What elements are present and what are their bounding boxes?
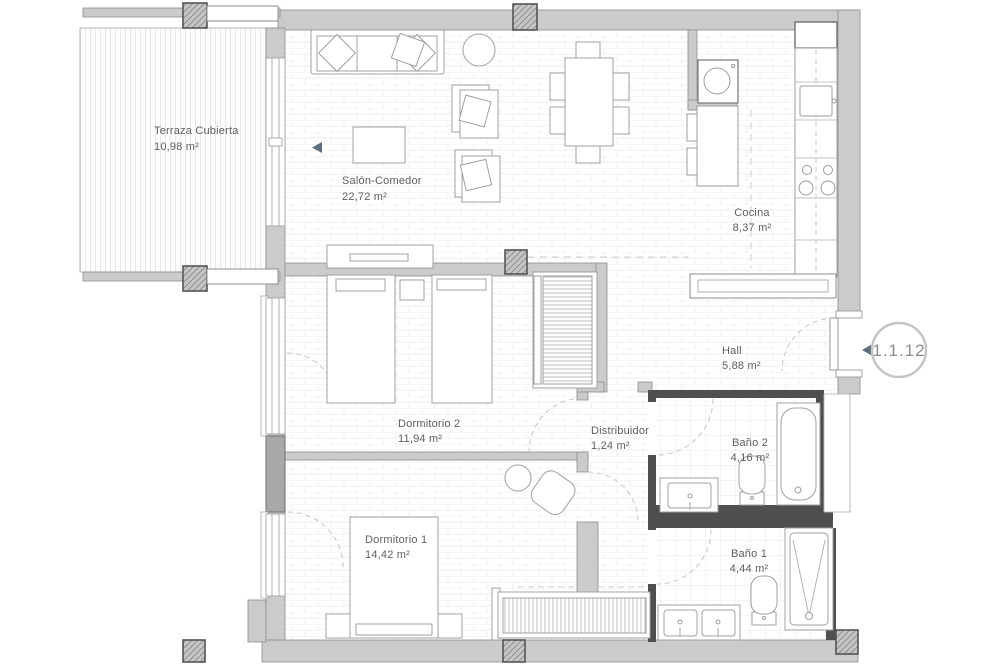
room-name: Distribuidor [591,425,649,437]
dining-chair-left-2 [550,107,566,134]
wall-between-baths [648,515,833,528]
exterior-ledge [824,394,850,512]
armchair-1 [452,85,498,138]
wall-hall-wardrobe [596,263,607,392]
shower-drain [806,613,813,620]
bath1-toilet [751,576,777,625]
bath1-toilet-button [763,617,766,620]
wall-bath2-top [648,390,824,398]
room-area: 4,44 m² [730,563,769,575]
dorm1-window [266,514,285,596]
floorplan-page: Terraza Cubierta 10,98 m² Salón-Comedor … [0,0,1000,666]
armchair-2-pillow [460,159,491,190]
wall-bath2-left-a [648,390,656,402]
room-name: Terraza Cubierta [154,125,239,137]
dining-chair-top [576,42,600,60]
wall-right-upper [838,10,860,315]
washing-machine-drum [704,68,730,94]
room-area: 8,37 m² [733,222,772,234]
bed1-pillow [356,624,432,635]
column-bottom-1 [183,640,205,662]
room-name: Dormitorio 2 [398,418,460,430]
wall-dorm2-dorm1 [285,452,588,460]
dorm1-wardrobe-hanging [503,598,646,633]
room-area: 11,94 m² [398,433,442,445]
wall-kitchen-left [688,30,697,110]
entrance-jamb-top [836,311,862,318]
dorm2-wardrobe-hanging [543,276,592,384]
bath2-toilet-button [751,497,754,500]
shower-tray [790,533,828,625]
column-top-wall [513,4,537,30]
bath2-faucet [688,494,692,498]
side-table-round [463,34,495,66]
wall-bottom-left-jog [248,600,266,642]
unit-label: 1.1.12 [872,341,925,360]
wall-top [278,10,858,30]
unit-marker: 1.1.12 [862,323,926,377]
dining-chair-right-1 [613,73,629,100]
column-bottom-right [836,630,858,654]
dorm2-wardrobe-door [534,276,541,384]
room-name: Hall [722,345,742,357]
column-interior [505,250,527,274]
column-bottom-2 [503,640,525,662]
burner-small-right [824,166,833,175]
bed2-single-2 [432,275,492,403]
sofa [311,30,444,74]
dorm2-wardrobe [533,272,597,388]
dorm1-side-table [505,465,531,491]
tv-console [327,245,433,268]
entrance-jamb-bottom [836,370,862,377]
armchair-2 [455,150,500,202]
room-name: Baño 1 [731,548,767,560]
room-area: 22,72 m² [342,191,387,203]
room-area: 4,16 m² [731,452,770,464]
salon-glazing-handle [269,138,282,146]
dorm1-wardrobe [492,588,650,640]
bath1-vanity [658,605,740,640]
coffee-table [353,127,405,163]
dining-chair-bottom [576,145,600,163]
dorm2-furniture [327,272,597,403]
wall-dorm2-corner [577,452,588,472]
room-area: 1,24 m² [591,440,630,452]
cabinet-door-1 [687,114,697,141]
dorm2-window [266,298,285,434]
column-terrace-top [183,3,207,28]
tv-screen [350,254,408,261]
room-area: 5,88 m² [722,360,761,372]
entrance-door-leaf [830,318,838,370]
bed2-single-2-pillow [437,279,486,290]
bath1-faucet-2 [716,620,720,624]
sofa-cushion-2 [357,36,397,71]
wall-bottom [262,640,858,662]
dorm1-nightstand-left [326,614,350,638]
dining-table [565,58,613,146]
dining-chair-right-2 [613,107,629,134]
bed2-single-1 [327,275,395,403]
left-wall-pillar [266,436,285,512]
washing-machine-knob [732,65,735,68]
burner-small-left [803,166,812,175]
bed2-single-1-pillow [336,279,385,291]
fridge [795,22,837,48]
terrace-beam-top [207,6,278,21]
bath1-faucet-1 [678,620,682,624]
dorm1-nightstand-right [438,614,462,638]
bath1-toilet-bowl [751,576,777,614]
dining-chair-left-1 [550,73,566,100]
bathtub-drain [795,487,801,493]
kitchen-sink [800,86,832,116]
kitchen-peninsula [697,106,738,186]
floorplan-canvas: Terraza Cubierta 10,98 m² Salón-Comedor … [0,0,1000,666]
terrace-beam-bottom [207,269,278,284]
shower [785,528,833,630]
room-name: Baño 2 [732,437,768,449]
room-name: Dormitorio 1 [365,534,427,546]
column-terrace-bottom [183,266,207,291]
bathtub-basin [781,408,816,500]
dorm2-nightstand [400,280,424,300]
burner-large-right [821,181,835,195]
room-name: Salón-Comedor [342,175,422,187]
burner-large-left [799,181,813,195]
cabinet-door-2 [687,148,697,175]
bathtub [777,403,820,505]
room-area: 10,98 m² [154,141,199,153]
hall-bench [690,274,836,298]
bath2-vanity [660,478,718,512]
wall-dorm2-door-stub [577,392,588,400]
kitchen-faucet [832,99,836,103]
room-name: Cocina [734,207,770,219]
room-area: 14,42 m² [365,549,410,561]
